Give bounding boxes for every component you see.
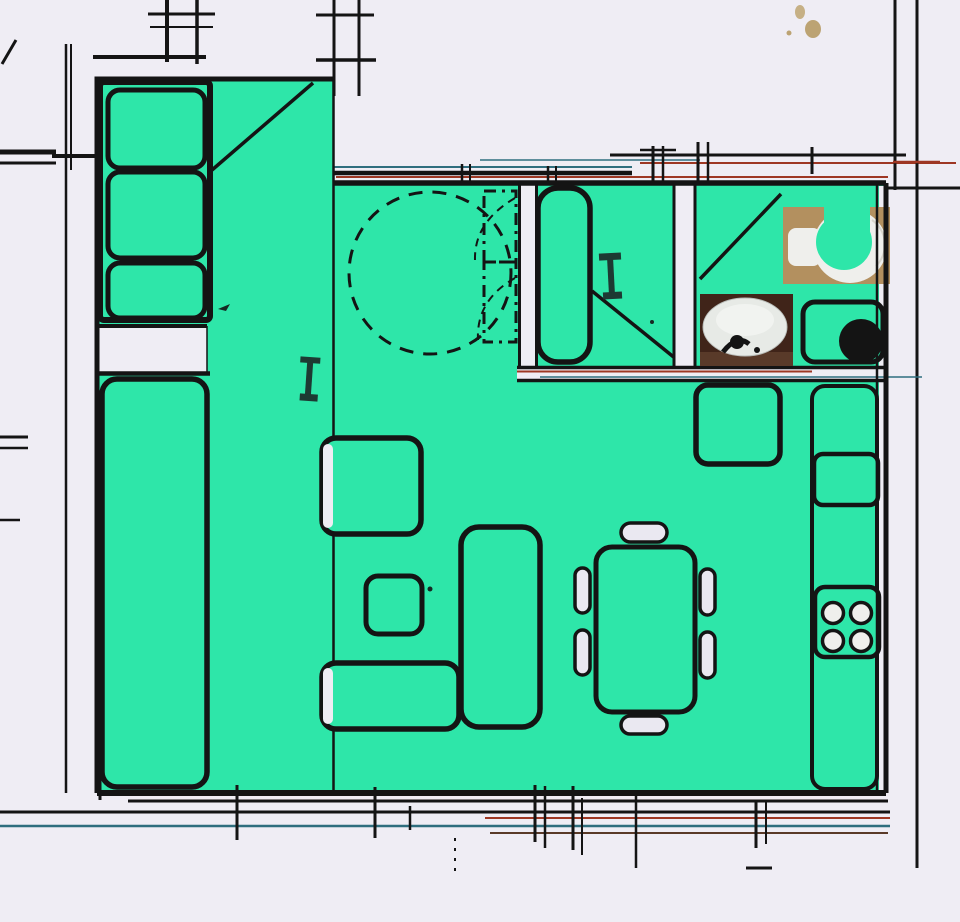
window-opening (96, 326, 210, 374)
stove-burner (851, 631, 872, 652)
toilet-photo (783, 207, 890, 284)
hall-door-panel (538, 188, 590, 362)
dining-chair (700, 569, 715, 615)
floor-plan-scan (0, 0, 960, 922)
fridge (696, 385, 780, 464)
dining-set (575, 523, 715, 734)
sofa (461, 527, 540, 727)
stove-burner (823, 603, 844, 624)
wardrobe-unit (100, 82, 210, 320)
armchair (322, 438, 421, 534)
sofa-seat (322, 663, 459, 729)
dining-chair (575, 568, 590, 613)
stove (815, 587, 879, 657)
stove-burner (823, 631, 844, 652)
scan-white-sliver (323, 444, 333, 528)
bed (102, 379, 207, 787)
wardrobe-section (108, 263, 205, 318)
kitchen-sink-unit (814, 454, 878, 505)
hall-bathroom-wall (674, 183, 695, 371)
dining-chair (621, 716, 667, 734)
bathroom-bottom-wall (517, 368, 886, 380)
stove-burner (851, 603, 872, 624)
dining-chair (700, 632, 715, 678)
scan-white-sliver (323, 668, 333, 724)
dining-chair (621, 523, 667, 542)
side-table (366, 576, 422, 634)
hall-left-wall (520, 183, 537, 371)
dining-table (596, 547, 695, 712)
teal-flood-spill (824, 207, 870, 237)
wardrobe-section (108, 90, 205, 168)
sink-photo (700, 294, 793, 366)
washing-machine (803, 302, 883, 363)
floor-plan-canvas (0, 0, 960, 922)
dining-chair (575, 630, 590, 675)
wardrobe-section (108, 172, 205, 258)
